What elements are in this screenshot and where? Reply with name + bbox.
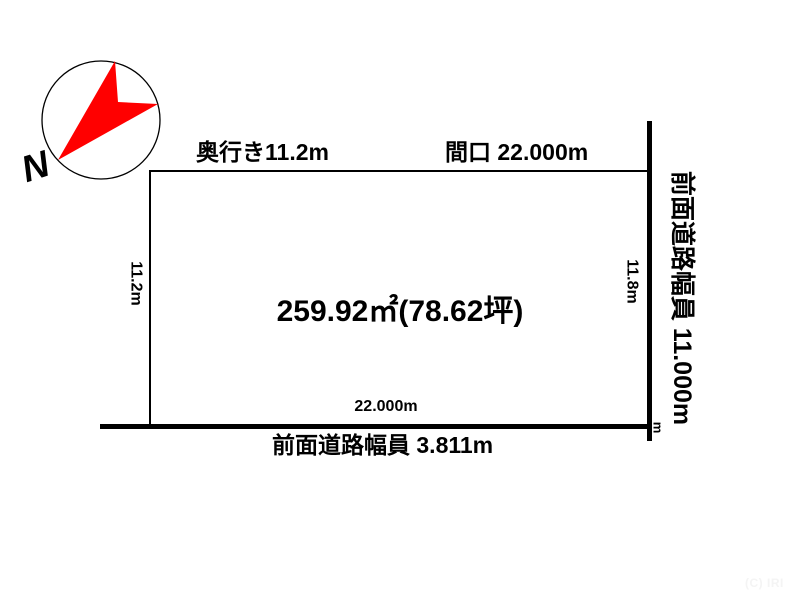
copyright-watermark: (C) IRI [745,577,784,590]
corner-unit-label: m [652,419,665,437]
right-road-width-label: 前面道路幅員 11.000m [667,170,695,426]
frontage-top-label: 間口 22.000m [445,140,588,164]
compass-icon [36,54,168,186]
bottom-frontage-label: 22.000m [350,399,422,416]
plot-top-boundary-line [149,170,652,172]
depth-top-label: 奥行き11.2m [196,140,329,164]
right-depth-label: 11.8m [623,252,640,312]
compass-north-arrow-icon [58,61,158,160]
bottom-road-width-label: 前面道路幅員 3.811m [272,433,493,457]
plot-area-label: 259.92㎡(78.62坪) [150,296,650,328]
land-plot-diagram: N 奥行き11.2m 間口 22.000m 259.92㎡(78.62坪) 11… [0,0,800,600]
bottom-road-line [100,424,652,429]
left-depth-label: 11.2m [127,254,144,314]
right-road-line [647,121,652,441]
